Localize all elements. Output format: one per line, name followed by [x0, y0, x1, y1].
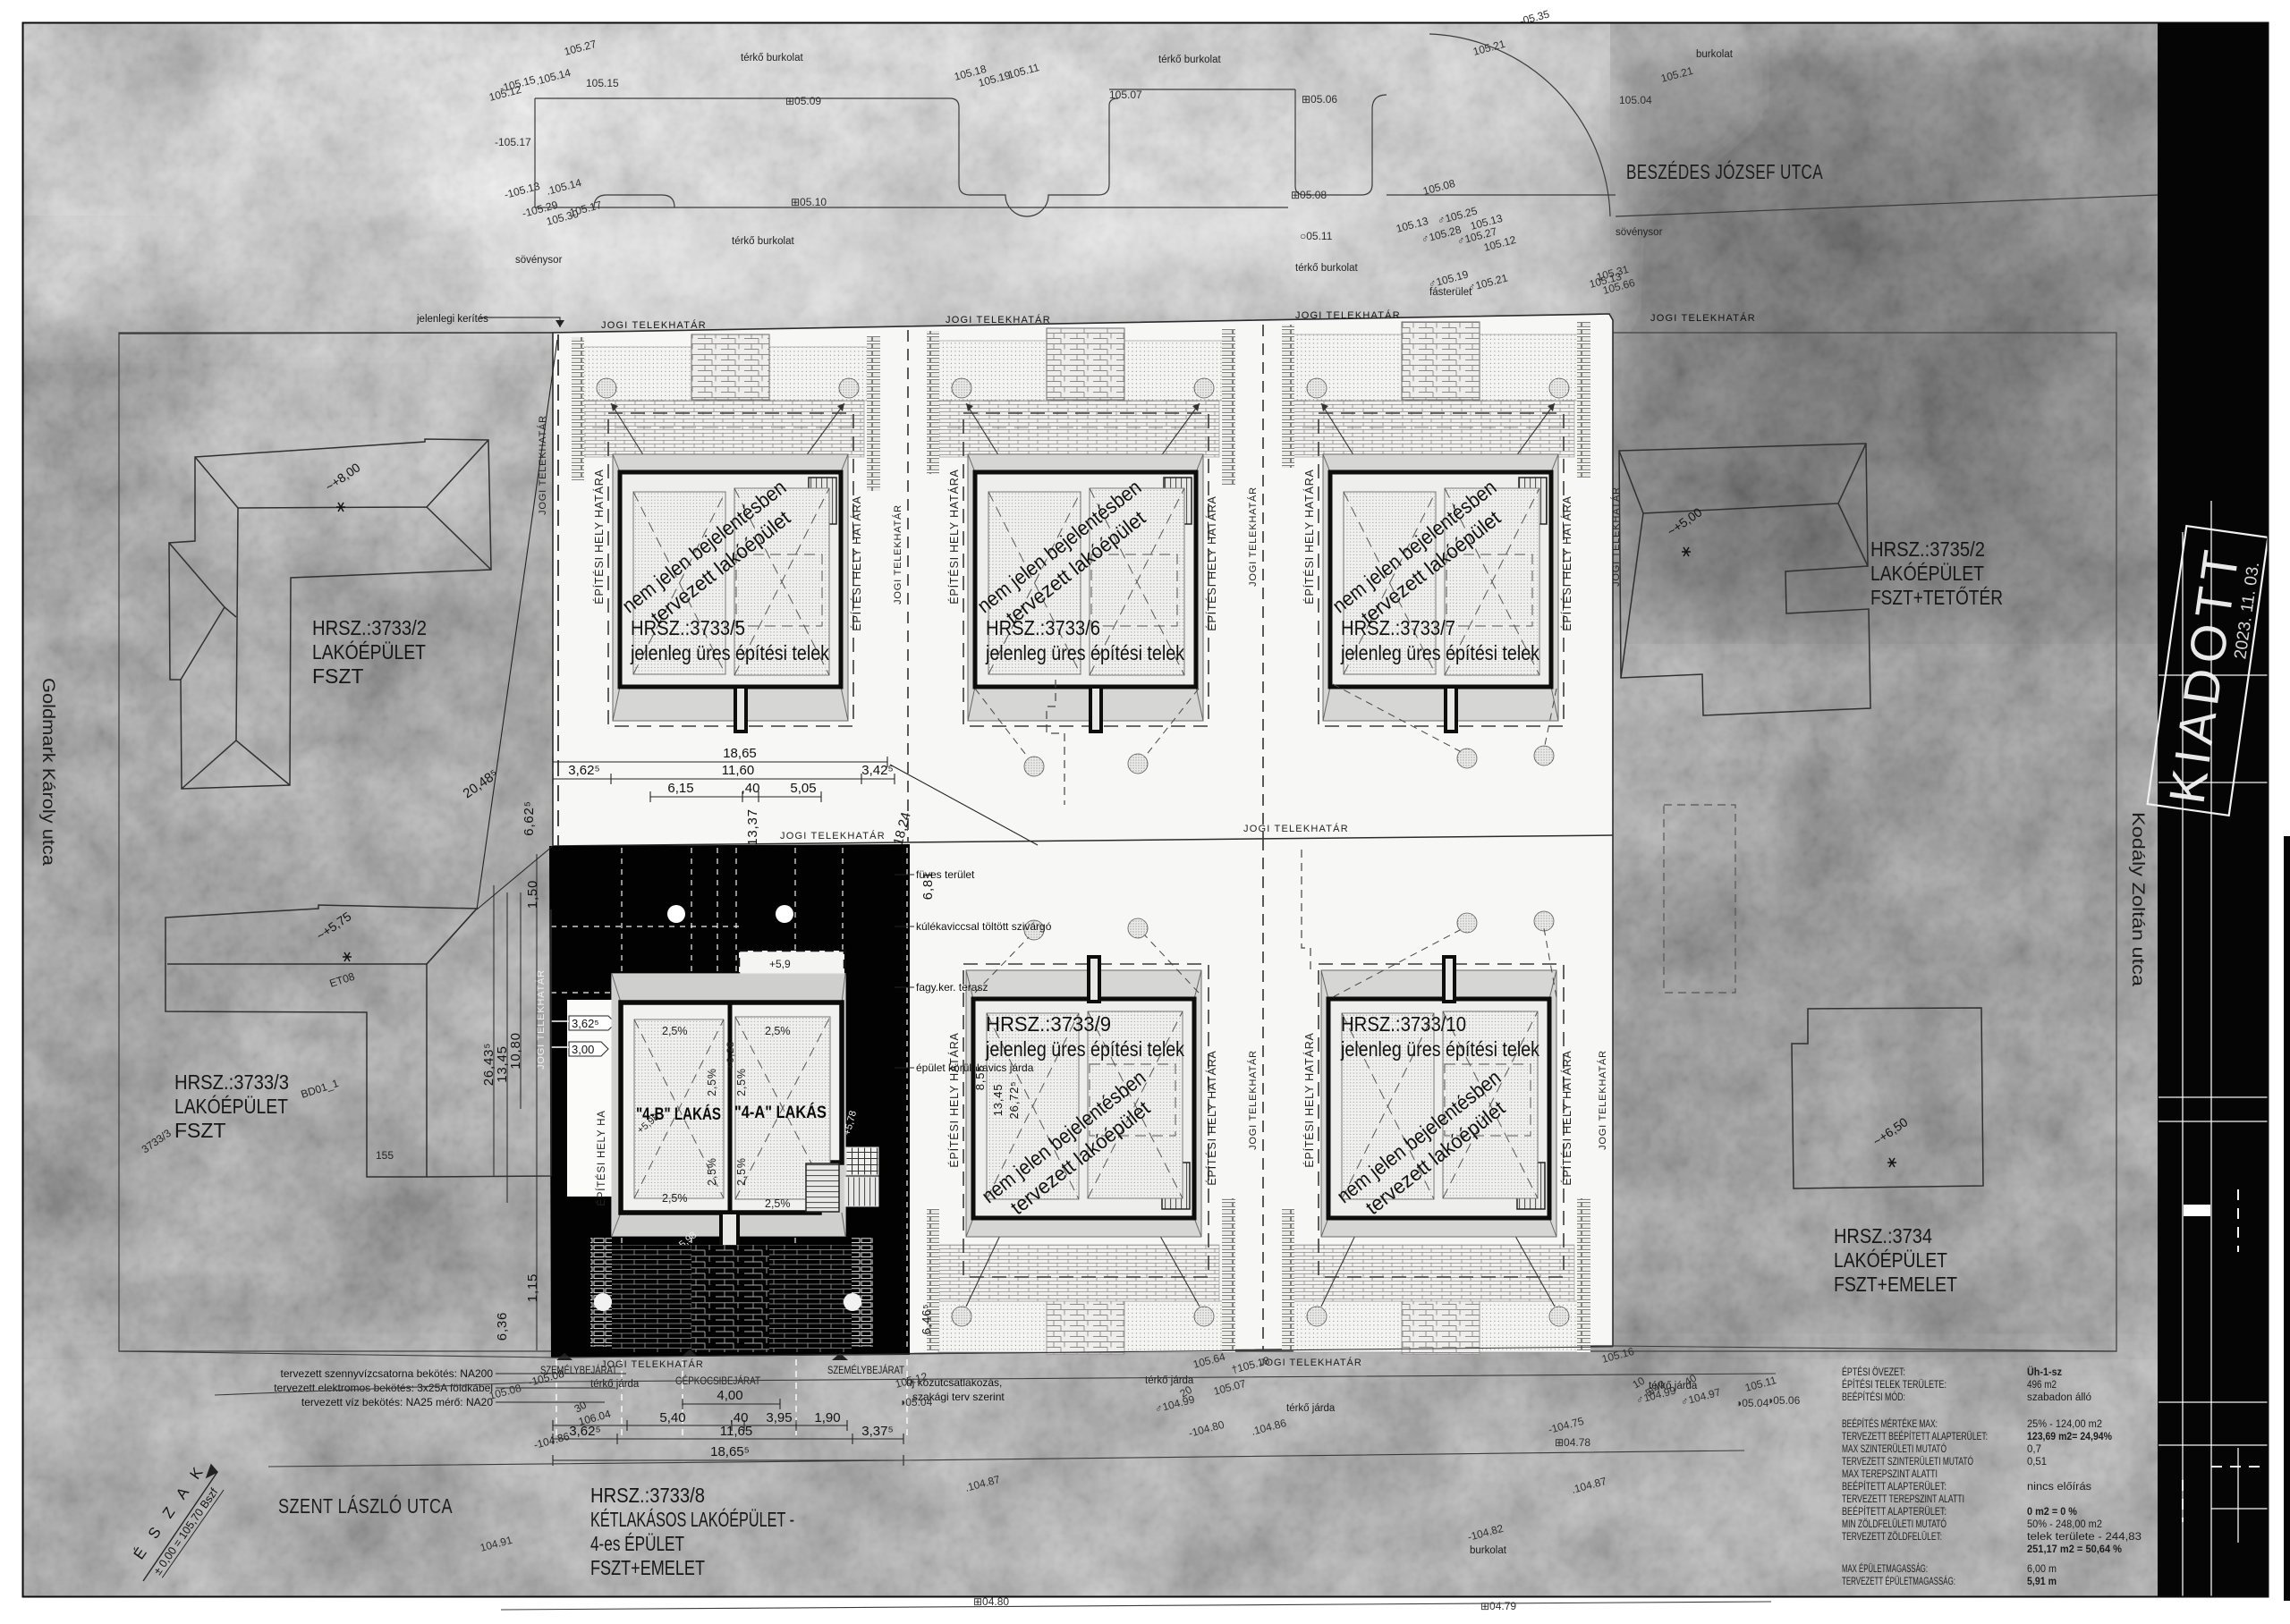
svg-text:5,40: 5,40 [659, 1410, 685, 1425]
svg-text:18,65: 18,65 [723, 746, 757, 761]
svg-text:LAKÓÉPÜLET: LAKÓÉPÜLET [1870, 562, 1984, 585]
svg-text:123,69 m2= 24,94%: 123,69 m2= 24,94% [2027, 1432, 2112, 1442]
svg-text:MAX SZINTERÜLETI MUTATÓ: MAX SZINTERÜLETI MUTATÓ [1842, 1443, 1946, 1455]
svg-text:térkő járda: térkő járda [1286, 1403, 1336, 1414]
svg-text:ÉPÍTÉSI HELY HATÁRA: ÉPÍTÉSI HELY HATÁRA [850, 495, 863, 630]
svg-text:10,80: 10,80 [508, 1032, 523, 1070]
svg-text:26,72⁵: 26,72⁵ [1007, 1081, 1021, 1120]
svg-text:tervezett víz bekötés: NA25 mé: tervezett víz bekötés: NA25 mérő: NA20 [301, 1396, 493, 1408]
svg-text:Üh-1-sz: Üh-1-sz [2027, 1366, 2062, 1378]
svg-text:0 m2 = 0 %: 0 m2 = 0 % [2027, 1507, 2077, 1518]
svg-text:1,90: 1,90 [814, 1410, 840, 1425]
svg-text:,40: ,40 [742, 781, 760, 796]
svg-text:burkolat: burkolat [1470, 1545, 1507, 1556]
svg-text:+5,9: +5,9 [769, 958, 791, 970]
svg-text:ÉPÍTÉSI HELY HATÁRA: ÉPÍTÉSI HELY HATÁRA [1560, 1050, 1573, 1185]
svg-text:jelenleg üres építési telek: jelenleg üres építési telek [1340, 1037, 1539, 1061]
svg-text:JOGI TELEKHATÁR: JOGI TELEKHATÁR [537, 415, 548, 515]
svg-text:3,37⁵: 3,37⁵ [861, 1424, 893, 1439]
svg-text:nincs előírás: nincs előírás [2027, 1482, 2091, 1493]
svg-text:2,5%: 2,5% [662, 1192, 688, 1205]
svg-text:jelenleg üres építési telek: jelenleg üres építési telek [1340, 641, 1539, 664]
svg-text:0,51: 0,51 [2027, 1457, 2047, 1468]
svg-text:fagy.ker. terasz: fagy.ker. terasz [916, 981, 988, 994]
svg-text:◑05.04: ◑05.04 [899, 1396, 933, 1408]
svg-text:MAX ÉPÜLETMAGASSÁG:: MAX ÉPÜLETMAGASSÁG: [1842, 1563, 1928, 1575]
svg-text:6,15: 6,15 [667, 781, 693, 796]
svg-text:4,00: 4,00 [717, 1388, 742, 1403]
svg-text:Kodály Zoltán utca: Kodály Zoltán utca [2128, 812, 2147, 987]
svg-text:155: 155 [376, 1149, 394, 1162]
svg-text:3,95: 3,95 [766, 1410, 792, 1425]
svg-text:MIN ZÖLDFELÜLETI MUTATÓ: MIN ZÖLDFELÜLETI MUTATÓ [1842, 1518, 1946, 1530]
svg-text:térkő burkolat: térkő burkolat [1295, 263, 1358, 274]
svg-text:JOGI TELEKHATÁR: JOGI TELEKHATÁR [1247, 486, 1259, 587]
svg-text:◑05.04: ◑05.04 [1735, 1397, 1769, 1409]
svg-text:Goldmark Károly utca: Goldmark Károly utca [38, 678, 57, 866]
svg-text:4-es ÉPÜLET: 4-es ÉPÜLET [590, 1532, 684, 1555]
svg-text:HRSZ.:3733/7: HRSZ.:3733/7 [1341, 616, 1455, 639]
svg-text:3,62⁵: 3,62⁵ [572, 1017, 599, 1030]
svg-text:6,46⁵: 6,46⁵ [920, 1304, 933, 1335]
svg-text:JOGI TELEKHATÁR: JOGI TELEKHATÁR [1295, 309, 1401, 321]
svg-text:ÉPÍTÉSI HELY HATÁRA: ÉPÍTÉSI HELY HATÁRA [1205, 1050, 1218, 1185]
svg-text:TERVEZETT SZINTERÜLETI MUTATÓ: TERVEZETT SZINTERÜLETI MUTATÓ [1842, 1456, 1973, 1468]
svg-text:⊞05.09: ⊞05.09 [785, 95, 821, 107]
svg-text:LAKÓÉPÜLET: LAKÓÉPÜLET [312, 640, 426, 664]
svg-text:JOGI TELEKHATÁR: JOGI TELEKHATÁR [1243, 823, 1349, 834]
svg-text:0,7: 0,7 [2027, 1444, 2041, 1455]
svg-text:LAKÓÉPÜLET: LAKÓÉPÜLET [1834, 1248, 1947, 1272]
svg-text:sövénysor: sövénysor [1616, 227, 1663, 238]
svg-text:11,65: 11,65 [720, 1424, 752, 1439]
svg-text:⊞04.78: ⊞04.78 [1555, 1436, 1590, 1449]
svg-text:2,5%: 2,5% [735, 1068, 748, 1096]
svg-text:⊞05.10: ⊞05.10 [791, 196, 827, 208]
svg-text:ÉPÍTÉSI HELY HA: ÉPÍTÉSI HELY HA [596, 1110, 607, 1205]
svg-text:HRSZ.:3733/3: HRSZ.:3733/3 [174, 1070, 289, 1094]
svg-text:25% - 124,00 m2: 25% - 124,00 m2 [2027, 1419, 2102, 1430]
svg-text:105.07: 105.07 [1109, 89, 1142, 101]
svg-text:◑05.06: ◑05.06 [1767, 1394, 1801, 1407]
svg-text:tervezett szennyvízcsatorna be: tervezett szennyvízcsatorna bekötés: NA2… [281, 1367, 494, 1380]
svg-text:11,60: 11,60 [722, 763, 754, 778]
svg-text:jelenleg üres építési telek: jelenleg üres építési telek [985, 641, 1184, 664]
svg-text:6,36: 6,36 [495, 1312, 510, 1341]
svg-text:jelenleg üres építési telek: jelenleg üres építési telek [985, 1037, 1184, 1061]
svg-text:BEÉPÍTÉSI MÓD:: BEÉPÍTÉSI MÓD: [1842, 1391, 1905, 1403]
svg-text:1,15: 1,15 [525, 1273, 540, 1302]
svg-text:18,65⁵: 18,65⁵ [710, 1444, 750, 1459]
svg-text:105.04: 105.04 [1619, 94, 1652, 106]
svg-text:ÉPÍTÉSI TELEK TERÜLETE:: ÉPÍTÉSI TELEK TERÜLETE: [1842, 1379, 1946, 1391]
svg-text:6,00 m: 6,00 m [2027, 1564, 2057, 1575]
svg-text:ÉPÍTÉSI HELY HATÁRA: ÉPÍTÉSI HELY HATÁRA [947, 1032, 961, 1167]
svg-text:HRSZ.:3733/9: HRSZ.:3733/9 [986, 1012, 1111, 1036]
svg-text:+6,28: +6,28 [725, 1041, 736, 1070]
svg-text:ÉPTÉSI ÖVEZET:: ÉPTÉSI ÖVEZET: [1842, 1366, 1905, 1378]
svg-text:JOGI TELEKHATÁR: JOGI TELEKHATÁR [892, 504, 903, 605]
svg-text:13,37: 13,37 [745, 808, 760, 846]
svg-text:TERVEZETT ÉPÜLETMAGASSÁG:: TERVEZETT ÉPÜLETMAGASSÁG: [1842, 1576, 1955, 1587]
svg-text:FSZT+TETŐTÉR: FSZT+TETŐTÉR [1870, 586, 2003, 609]
svg-text:⊞05.06: ⊞05.06 [1302, 93, 1337, 106]
svg-text:térkő burkolat: térkő burkolat [741, 53, 803, 63]
svg-text:JOGI TELEKHATÁR: JOGI TELEKHATÁR [1650, 312, 1756, 324]
svg-text:FSZT: FSZT [174, 1119, 226, 1142]
svg-text:105.15: 105.15 [586, 77, 619, 89]
svg-text:burkolat: burkolat [1696, 49, 1734, 60]
svg-text:ÉPÍTÉSI HELY HATÁRA: ÉPÍTÉSI HELY HATÁRA [1205, 495, 1218, 630]
svg-text:MAX TEREPSZINT ALATTI: MAX TEREPSZINT ALATTI [1842, 1469, 1938, 1480]
svg-text:TERVEZETT TEREPSZINT ALATTI: TERVEZETT TEREPSZINT ALATTI [1842, 1494, 1964, 1505]
svg-text:251,17 m2 = 50,64 %: 251,17 m2 = 50,64 % [2027, 1544, 2122, 1555]
svg-text:FSZT: FSZT [312, 664, 364, 688]
svg-text:2,5%: 2,5% [735, 1157, 748, 1186]
svg-text:HRSZ.:3733/10: HRSZ.:3733/10 [1341, 1012, 1466, 1036]
svg-text:SZEMÉLYBEJÁRAT: SZEMÉLYBEJÁRAT [827, 1363, 905, 1376]
svg-text:FSZT+EMELET: FSZT+EMELET [1834, 1273, 1957, 1296]
svg-text:FSZT+EMELET: FSZT+EMELET [590, 1556, 705, 1579]
svg-text:telek területe - 244,83: telek területe - 244,83 [2027, 1532, 2142, 1543]
svg-text:5,91 m: 5,91 m [2027, 1577, 2057, 1587]
svg-text:5,05: 5,05 [790, 781, 816, 796]
svg-text:6,62⁵: 6,62⁵ [522, 800, 537, 835]
svg-text:BEÉPÍTÉS MÉRTÉKE MAX:: BEÉPÍTÉS MÉRTÉKE MAX: [1842, 1418, 1938, 1430]
svg-text:HRSZ.:3733/6: HRSZ.:3733/6 [986, 616, 1100, 639]
svg-text:13,45: 13,45 [991, 1084, 1005, 1117]
svg-text:füves terület: füves terület [916, 868, 975, 881]
svg-text:JOGI TELEKHATÁR: JOGI TELEKHATÁR [1247, 1050, 1259, 1150]
svg-text:kúlékaviccsal töltött szivárgó: kúlékaviccsal töltött szivárgó [916, 920, 1052, 933]
svg-text:ÉPÍTÉSI HELY HATÁRA: ÉPÍTÉSI HELY HATÁRA [1302, 469, 1316, 604]
svg-text:"4-A" LAKÁS: "4-A" LAKÁS [734, 1103, 827, 1122]
svg-text:szabadon álló: szabadon álló [2027, 1392, 2091, 1403]
svg-text:HRSZ.:3733/5: HRSZ.:3733/5 [631, 616, 745, 639]
svg-text:2,5%: 2,5% [765, 1025, 791, 1037]
svg-text:JOGI TELEKHATÁR: JOGI TELEKHATÁR [601, 1358, 704, 1370]
svg-text:JOGI TELEKHATÁR: JOGI TELEKHATÁR [946, 314, 1051, 326]
svg-text:SZENT LÁSZLÓ UTCA: SZENT LÁSZLÓ UTCA [278, 1494, 453, 1518]
svg-text:⊞05.08: ⊞05.08 [1291, 189, 1327, 201]
svg-text:HRSZ.:3734: HRSZ.:3734 [1834, 1224, 1932, 1248]
svg-text:épület körüli kavics járda: épület körüli kavics járda [916, 1062, 1034, 1074]
svg-text:2,5%: 2,5% [706, 1068, 718, 1096]
svg-text:2,5%: 2,5% [765, 1197, 791, 1210]
svg-text:ÉPÍTÉSI HELY HATÁRA: ÉPÍTÉSI HELY HATÁRA [1302, 1032, 1316, 1167]
svg-text:JOGI TELEKHATÁR: JOGI TELEKHATÁR [780, 830, 886, 842]
svg-text:JOGI TELEKHATÁR: JOGI TELEKHATÁR [601, 319, 707, 331]
svg-text:JOGI TELEKHATÁR: JOGI TELEKHATÁR [1259, 1357, 1362, 1368]
svg-text:térkő burkolat: térkő burkolat [732, 236, 794, 247]
svg-text:○05.11: ○05.11 [1300, 230, 1333, 242]
svg-text:HRSZ.:3733/8: HRSZ.:3733/8 [590, 1484, 705, 1507]
svg-text:BESZÉDES JÓZSEF UTCA: BESZÉDES JÓZSEF UTCA [1626, 160, 1823, 183]
svg-text:⊞04.79: ⊞04.79 [1480, 1600, 1516, 1612]
svg-text:jelenlegi kerítés: jelenlegi kerítés [416, 314, 488, 325]
svg-text:ÉPÍTÉSI HELY HATÁRA: ÉPÍTÉSI HELY HATÁRA [947, 469, 961, 604]
svg-text:HRSZ.:3733/2: HRSZ.:3733/2 [312, 616, 427, 639]
svg-text:LAKÓÉPÜLET: LAKÓÉPÜLET [174, 1095, 288, 1118]
svg-text:50% - 248,00 m2: 50% - 248,00 m2 [2027, 1519, 2102, 1530]
svg-text:ÉPÍTÉSI HELY HATÁRA: ÉPÍTÉSI HELY HATÁRA [592, 469, 606, 604]
svg-text:TERVEZETT ZÖLDFELÜLET:: TERVEZETT ZÖLDFELÜLET: [1842, 1532, 1942, 1543]
svg-text:2,5%: 2,5% [706, 1157, 718, 1186]
svg-text:3,00: 3,00 [572, 1043, 594, 1056]
svg-text:JOGI TELEKHATÁR: JOGI TELEKHATÁR [1597, 1050, 1608, 1150]
svg-text:1,50: 1,50 [525, 880, 540, 909]
svg-text:496 m2: 496 m2 [2027, 1380, 2057, 1391]
svg-text:HRSZ.:3735/2: HRSZ.:3735/2 [1870, 537, 1985, 561]
svg-text:3,42⁵: 3,42⁵ [861, 763, 893, 778]
svg-text:-105.17: -105.17 [495, 136, 531, 148]
svg-text:BEÉPÍTETT ALAPTERÜLET:: BEÉPÍTETT ALAPTERÜLET: [1842, 1506, 1946, 1518]
svg-text:3,62⁵: 3,62⁵ [568, 763, 599, 778]
svg-text:TERVEZETT BEÉPÍTETT ALAPTERÜLE: TERVEZETT BEÉPÍTETT ALAPTERÜLET: [1842, 1431, 1988, 1442]
svg-text:ÉPÍTÉSI HELY HATÁRA: ÉPÍTÉSI HELY HATÁRA [1560, 495, 1573, 630]
svg-text:KÉTLAKÁSOS LAKÓÉPÜLET -: KÉTLAKÁSOS LAKÓÉPÜLET - [590, 1508, 794, 1531]
svg-text:2,5%: 2,5% [662, 1025, 688, 1037]
svg-text:jelenleg üres építési telek: jelenleg üres építési telek [630, 641, 829, 664]
svg-text:BEÉPÍTETT ALAPTERÜLET:: BEÉPÍTETT ALAPTERÜLET: [1842, 1481, 1946, 1493]
svg-text:sövénysor: sövénysor [515, 255, 563, 266]
svg-text:térkő burkolat: térkő burkolat [1158, 55, 1221, 65]
